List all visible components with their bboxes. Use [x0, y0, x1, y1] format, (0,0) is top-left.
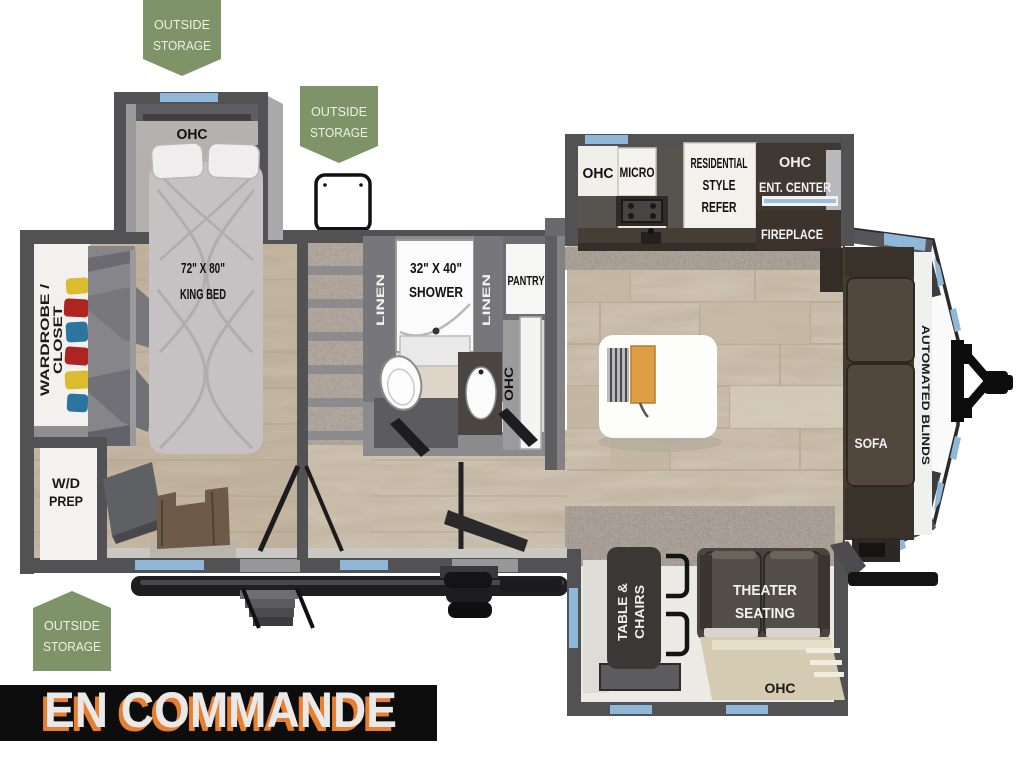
svg-text:SOFA: SOFA	[855, 435, 888, 451]
svg-text:STORAGE: STORAGE	[310, 125, 368, 140]
svg-text:RESIDENTIAL: RESIDENTIAL	[691, 155, 748, 172]
svg-text:WARDROBE /: WARDROBE /	[40, 283, 52, 396]
svg-text:KING BED: KING BED	[180, 286, 226, 303]
svg-text:W/D: W/D	[52, 475, 80, 491]
svg-text:OHC: OHC	[504, 367, 516, 401]
svg-text:PREP: PREP	[49, 493, 83, 509]
svg-text:STYLE: STYLE	[703, 177, 736, 194]
svg-text:AUTOMATED BLINDS: AUTOMATED BLINDS	[919, 325, 931, 465]
svg-text:REFER: REFER	[702, 199, 737, 216]
svg-text:OUTSIDE: OUTSIDE	[311, 104, 367, 119]
svg-text:OHC: OHC	[583, 166, 614, 182]
svg-text:SEATING: SEATING	[735, 605, 795, 622]
svg-text:LINEN: LINEN	[481, 274, 493, 326]
svg-text:EN COMMANDE: EN COMMANDE	[44, 682, 397, 738]
svg-text:OUTSIDE: OUTSIDE	[44, 618, 100, 633]
svg-text:OHC: OHC	[765, 680, 796, 696]
svg-text:PANTRY: PANTRY	[508, 274, 545, 288]
svg-text:OHC: OHC	[779, 155, 812, 171]
svg-text:STORAGE: STORAGE	[153, 38, 211, 53]
svg-text:72" X 80": 72" X 80"	[181, 260, 225, 277]
svg-text:OHC: OHC	[177, 127, 208, 143]
svg-text:LINEN: LINEN	[375, 274, 387, 326]
svg-text:CLOSET: CLOSET	[53, 306, 65, 374]
svg-text:CHAIRS: CHAIRS	[633, 585, 647, 639]
svg-text:MICRO: MICRO	[620, 164, 655, 180]
svg-text:SHOWER: SHOWER	[409, 285, 463, 301]
svg-text:FIREPLACE: FIREPLACE	[761, 226, 823, 242]
svg-text:ENT. CENTER: ENT. CENTER	[759, 180, 831, 195]
svg-text:OUTSIDE: OUTSIDE	[154, 17, 210, 32]
svg-text:TABLE &: TABLE &	[616, 583, 630, 641]
svg-text:STORAGE: STORAGE	[43, 639, 101, 654]
svg-text:THEATER: THEATER	[733, 582, 797, 599]
svg-text:32" X 40": 32" X 40"	[410, 261, 462, 277]
